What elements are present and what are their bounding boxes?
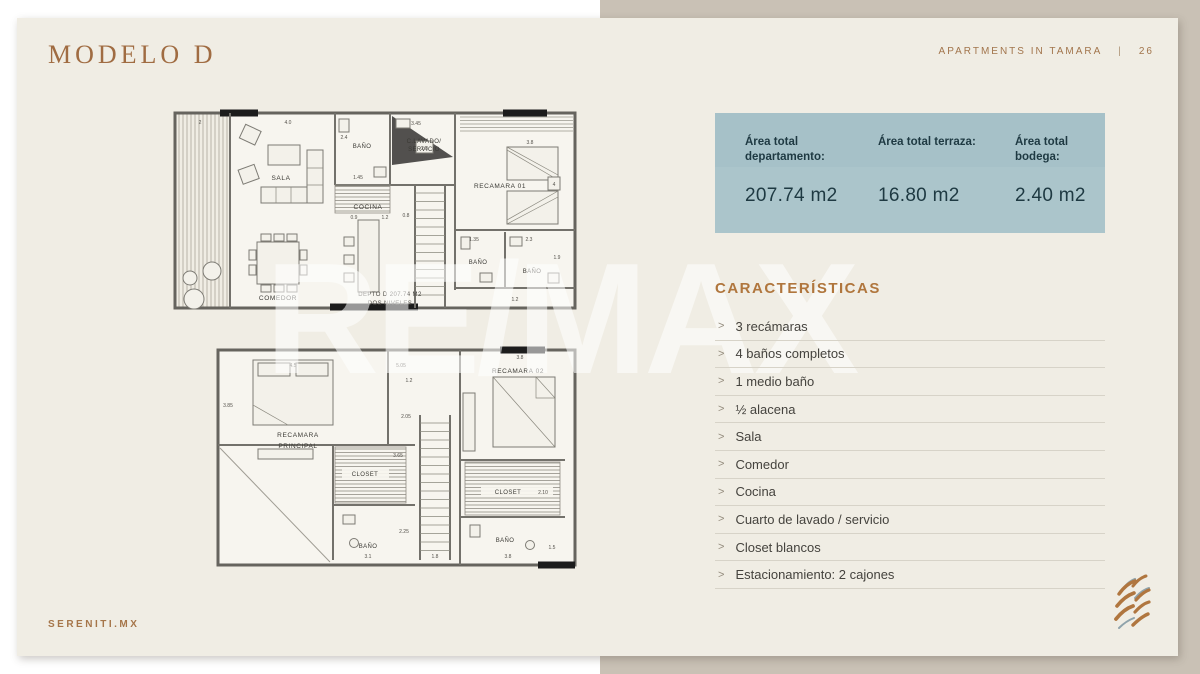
characteristics-section: CARACTERÍSTICAS >3 recámaras >4 baños co… bbox=[715, 280, 1105, 589]
label-bano-mid1: BAÑO bbox=[469, 259, 488, 266]
label-lavado-1: C.LAVADO/ bbox=[407, 139, 442, 145]
plan-caption-1: DEPTO D 207.74 M2 bbox=[358, 292, 422, 298]
list-item-label: Cocina bbox=[735, 484, 775, 499]
wall-segment bbox=[503, 110, 547, 117]
list-item-label: 3 recámaras bbox=[735, 319, 807, 334]
label-bano-left: BAÑO bbox=[359, 543, 378, 550]
svg-text:3.1: 3.1 bbox=[365, 554, 372, 560]
info-panel: Área total departamento: 207.74 m2 Área … bbox=[715, 18, 1107, 656]
slide-card: MODELO D APARTMENTS IN TAMARA | 26 bbox=[17, 18, 1178, 656]
area-value: 2.40 m2 bbox=[1015, 185, 1086, 207]
label-recamara01: RECAMARA 01 bbox=[474, 183, 526, 190]
website-label: SERENITI.MX bbox=[48, 619, 139, 630]
chevron-right-icon: > bbox=[718, 486, 724, 498]
list-item: >Sala bbox=[715, 423, 1105, 451]
svg-text:3.45: 3.45 bbox=[411, 121, 421, 127]
page-number: 26 bbox=[1139, 46, 1154, 57]
label-comedor: COMEDOR bbox=[259, 295, 297, 302]
svg-text:1.35: 1.35 bbox=[469, 237, 479, 243]
list-item-label: ½ alacena bbox=[735, 402, 795, 417]
list-item-label: Comedor bbox=[735, 457, 788, 472]
svg-text:2.8: 2.8 bbox=[421, 146, 428, 152]
label-bano-right: BAÑO bbox=[496, 537, 515, 544]
page-title: MODELO D bbox=[48, 40, 217, 70]
area-col-terraza: Área total terraza: 16.80 m2 bbox=[878, 113, 1015, 233]
area-table: Área total departamento: 207.74 m2 Área … bbox=[715, 113, 1105, 233]
sereniti-logo-icon bbox=[1111, 570, 1155, 632]
svg-text:3.65: 3.65 bbox=[393, 453, 403, 459]
chevron-right-icon: > bbox=[718, 320, 724, 332]
area-value: 16.80 m2 bbox=[878, 185, 960, 207]
list-item: >½ alacena bbox=[715, 396, 1105, 424]
chevron-right-icon: > bbox=[718, 541, 724, 553]
label-recamara02: RECAMARA 02 bbox=[492, 368, 544, 375]
svg-text:2: 2 bbox=[199, 120, 202, 126]
svg-text:0.8: 0.8 bbox=[403, 213, 410, 219]
chevron-right-icon: > bbox=[718, 375, 724, 387]
list-item: >3 recámaras bbox=[715, 313, 1105, 341]
list-item-label: Estacionamiento: 2 cajones bbox=[735, 567, 894, 582]
svg-text:2.05: 2.05 bbox=[401, 414, 411, 420]
area-label: Área total departamento: bbox=[745, 135, 857, 165]
svg-text:2.25: 2.25 bbox=[399, 529, 409, 535]
svg-text:1.5: 1.5 bbox=[549, 545, 556, 551]
chevron-right-icon: > bbox=[718, 458, 724, 470]
area-label: Área total terraza: bbox=[878, 135, 976, 150]
list-item: >4 baños completos bbox=[715, 341, 1105, 369]
svg-text:0.9: 0.9 bbox=[351, 215, 358, 221]
label-bano-top: BAÑO bbox=[353, 143, 372, 150]
svg-text:1.45: 1.45 bbox=[353, 175, 363, 181]
svg-text:5.05: 5.05 bbox=[396, 363, 406, 369]
list-item-label: Cuarto de lavado / servicio bbox=[735, 512, 889, 527]
label-bed-count: 4 bbox=[553, 182, 556, 188]
chevron-right-icon: > bbox=[718, 513, 724, 525]
level2-plan: RECAMARA PRINCIPAL CLOSET BAÑO RECAMARA … bbox=[218, 347, 575, 569]
area-col-departamento: Área total departamento: 207.74 m2 bbox=[745, 113, 878, 233]
svg-text:1.2: 1.2 bbox=[382, 215, 389, 221]
list-item: >Closet blancos bbox=[715, 534, 1105, 562]
svg-text:2.10: 2.10 bbox=[538, 490, 548, 496]
chevron-right-icon: > bbox=[718, 431, 724, 443]
area-col-bodega: Área total bodega: 2.40 m2 bbox=[1015, 113, 1105, 233]
label-bano-mid2: BAÑO bbox=[523, 268, 542, 275]
slide: MODELO D APARTMENTS IN TAMARA | 26 bbox=[0, 0, 1200, 674]
plan-caption-2: DOS NIVELES bbox=[368, 301, 412, 307]
list-item: >Comedor bbox=[715, 451, 1105, 479]
separator: | bbox=[1118, 46, 1123, 57]
chevron-right-icon: > bbox=[718, 569, 724, 581]
list-item: >Cocina bbox=[715, 479, 1105, 507]
label-sala: SALA bbox=[271, 175, 290, 182]
svg-text:3.8: 3.8 bbox=[527, 140, 534, 146]
svg-text:4.0: 4.0 bbox=[285, 120, 292, 126]
level1-plan: SALA BAÑO C.LAVADO/ SERVICIO COCINA RECA… bbox=[175, 110, 575, 311]
list-item-label: 1 medio baño bbox=[735, 374, 814, 389]
list-item-label: 4 baños completos bbox=[735, 346, 844, 361]
wall-segment bbox=[500, 347, 545, 354]
floorplan-svg: SALA BAÑO C.LAVADO/ SERVICIO COCINA RECA… bbox=[158, 105, 578, 575]
area-value: 207.74 m2 bbox=[745, 185, 838, 207]
svg-text:1.2: 1.2 bbox=[406, 378, 413, 384]
characteristics-list: >3 recámaras >4 baños completos >1 medio… bbox=[715, 313, 1105, 589]
list-item: >Estacionamiento: 2 cajones bbox=[715, 561, 1105, 589]
chevron-right-icon: > bbox=[718, 403, 724, 415]
characteristics-title: CARACTERÍSTICAS bbox=[715, 280, 1105, 297]
list-item-label: Sala bbox=[735, 429, 761, 444]
chevron-right-icon: > bbox=[718, 348, 724, 360]
svg-text:4.5: 4.5 bbox=[290, 363, 297, 369]
label-closet-right: CLOSET bbox=[495, 490, 521, 496]
list-item: >1 medio baño bbox=[715, 368, 1105, 396]
label-closet-left: CLOSET bbox=[352, 472, 378, 478]
svg-text:2.3: 2.3 bbox=[526, 237, 533, 243]
svg-text:3.8: 3.8 bbox=[517, 355, 524, 361]
svg-text:3.8: 3.8 bbox=[505, 554, 512, 560]
svg-text:2.4: 2.4 bbox=[341, 135, 348, 141]
wall-segment bbox=[220, 110, 258, 117]
label-recamara-ppal-1: RECAMARA bbox=[277, 432, 319, 439]
comedor-furniture bbox=[249, 234, 307, 292]
label-recamara-ppal-2: PRINCIPAL bbox=[278, 443, 317, 450]
svg-text:1.9: 1.9 bbox=[554, 255, 561, 261]
wall-segment bbox=[538, 562, 575, 569]
svg-text:1.8: 1.8 bbox=[432, 554, 439, 560]
floorplan: SALA BAÑO C.LAVADO/ SERVICIO COCINA RECA… bbox=[158, 105, 578, 575]
list-item-label: Closet blancos bbox=[735, 540, 820, 555]
svg-text:3.85: 3.85 bbox=[223, 403, 233, 409]
svg-text:1.2: 1.2 bbox=[512, 297, 519, 303]
area-label: Área total bodega: bbox=[1015, 135, 1105, 165]
list-item: >Cuarto de lavado / servicio bbox=[715, 506, 1105, 534]
label-cocina: COCINA bbox=[354, 204, 383, 211]
